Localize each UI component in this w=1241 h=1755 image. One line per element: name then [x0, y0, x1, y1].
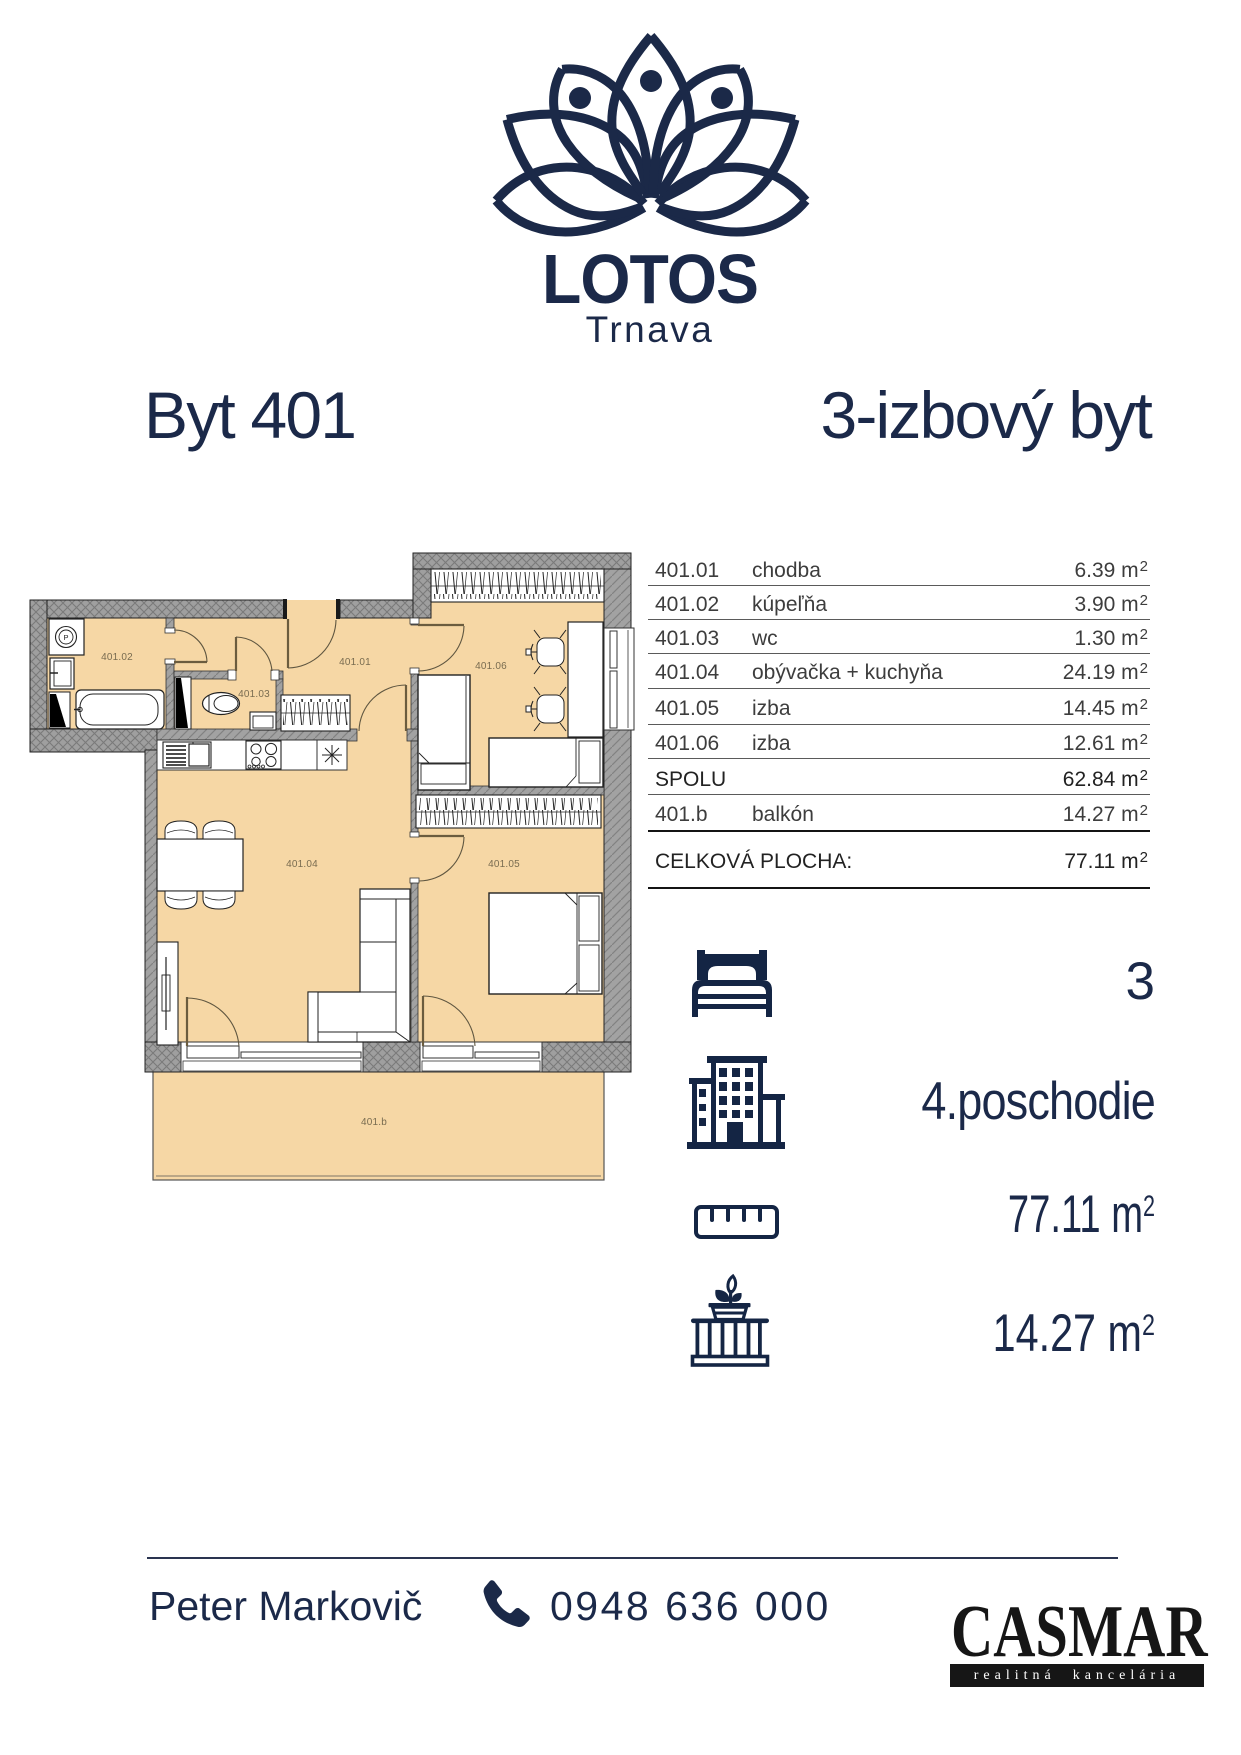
- svg-text:401.04: 401.04: [286, 859, 318, 870]
- svg-text:401.01: 401.01: [339, 657, 371, 668]
- svg-text:401.02: 401.02: [101, 652, 133, 663]
- svg-text:401.03: 401.03: [238, 689, 270, 700]
- svg-text:401.b: 401.b: [361, 1117, 387, 1128]
- svg-text:401.06: 401.06: [475, 661, 507, 672]
- svg-text:401.05: 401.05: [488, 859, 520, 870]
- svg-text:P: P: [63, 633, 68, 642]
